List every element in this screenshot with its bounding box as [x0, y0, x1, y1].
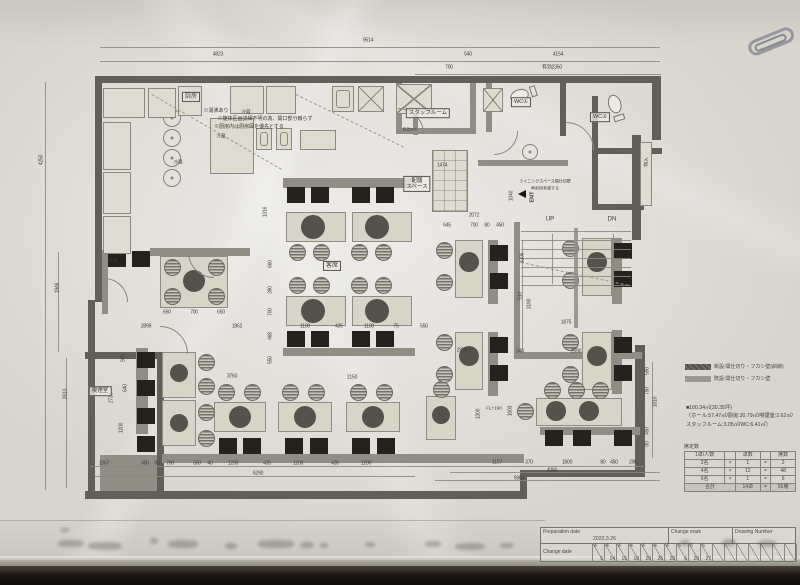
chair [282, 384, 299, 401]
table-top-circle [362, 406, 384, 428]
room-label: 冷蔵 [242, 109, 251, 114]
dimension-label: 650 [217, 311, 225, 316]
chair [313, 244, 330, 261]
dimension-label: 4250 [40, 155, 45, 165]
dimension-label: 9514 [363, 39, 373, 44]
bench-seat [490, 365, 508, 381]
kitchen-equipment [103, 216, 131, 254]
seat-table-cell: = [760, 468, 771, 476]
chair [351, 277, 368, 294]
dimension-label: 350 [193, 462, 201, 467]
room-label: 再利用考慮する [531, 187, 559, 192]
dimension-line [58, 252, 59, 352]
change-date-day: 20 [693, 557, 699, 562]
chair [289, 277, 306, 294]
change-date-entry: 426 [653, 544, 665, 562]
chair [517, 403, 534, 420]
change-date-month: 4 [606, 544, 609, 549]
table-top-circle [579, 401, 599, 421]
room-label: 冷蔵 [217, 133, 226, 138]
dimension-label: 700 [470, 224, 478, 229]
change-date-entry: 520 [689, 544, 701, 562]
door-swing-arc [538, 122, 594, 178]
dimension-label: 5983 [514, 477, 524, 482]
dimension-label: 450 [646, 427, 651, 435]
dimension-label: 540 [464, 53, 472, 58]
seat-table-cell: = [760, 460, 771, 468]
bench-seat [132, 251, 150, 267]
kitchen-equipment [640, 142, 652, 206]
dimension-line [652, 362, 653, 458]
dimension-label: 2590 [571, 350, 581, 355]
change-date-cell: Change date [541, 544, 593, 562]
change-date-month: 4 [654, 544, 657, 549]
seat-table-cell: 席数 [771, 452, 796, 460]
dimension-label: 3190 [528, 299, 533, 309]
change-date-entry: 45 [593, 544, 605, 562]
chair [436, 242, 453, 259]
table-top-circle [546, 401, 566, 421]
room-label: 配膳 スペース [403, 176, 430, 192]
seat-table-cell [760, 452, 771, 460]
dimension-label: 4154 [553, 53, 563, 58]
bench-seat [490, 273, 508, 289]
table-top-circle [294, 406, 316, 428]
seat-count-table: 席定数 1卓/人数卓数席数2名×1=24名×12=486名×1=6合計14卓=5… [684, 443, 796, 492]
dimension-line [552, 234, 553, 284]
bench-seat [310, 438, 328, 454]
chair [375, 244, 392, 261]
bench-seat [614, 430, 632, 446]
wall [95, 76, 102, 302]
chair [308, 384, 325, 401]
total-area-line: ■100.34㎡(30.35坪) [686, 404, 793, 412]
chair [568, 382, 585, 399]
table-top-circle [587, 346, 607, 366]
seat-table: 1卓/人数卓数席数2名×1=24名×12=486名×1=6合計14卓=56席 [684, 451, 796, 492]
wall [514, 222, 520, 357]
bench-seat [545, 430, 563, 446]
dimension-label: 450 [610, 461, 618, 466]
dimension-label: 468 [269, 332, 274, 340]
kitchen-pot-circle [163, 169, 181, 187]
chair [376, 384, 393, 401]
legend-item-new-wall: 新設:間仕切り・フカシ壁(斜線) [685, 363, 784, 370]
seat-table-cell: 1卓/人数 [685, 452, 725, 460]
room-label: WC① [511, 97, 531, 107]
bleed-through-mark [225, 543, 237, 549]
wall [283, 348, 415, 356]
wall [560, 83, 566, 136]
dimension-label: 1946 [56, 283, 61, 293]
dimension-label: 750 [646, 387, 651, 395]
bench-seat [490, 245, 508, 261]
table-top-circle [459, 252, 479, 272]
room-label: ライニングスペース間仕切壁 [519, 180, 571, 185]
change-date-entry: 56 [677, 544, 689, 562]
dimension-line [66, 358, 67, 488]
bench-seat [285, 438, 303, 454]
paperclip [725, 3, 800, 94]
chair [433, 381, 450, 398]
seat-table-cell: × [725, 460, 736, 468]
room-label: 厨房 [182, 92, 200, 102]
dimension-label: 340 [516, 350, 524, 355]
bench-seat [376, 331, 394, 347]
dimension-label: 1100 [364, 325, 374, 330]
table-top-circle [170, 364, 188, 382]
room-label: 冷蔵 [174, 159, 183, 164]
change-date-month: 4 [630, 544, 633, 549]
change-date-day: 26 [657, 557, 663, 562]
dimension-label: 1300 [477, 409, 482, 419]
bleed-through-mark [680, 540, 690, 546]
preparation-date-cell: Preparation date 2022.3.26 [541, 528, 669, 543]
kitchen-equipment [103, 172, 131, 214]
entrance-arrow-icon [518, 190, 526, 198]
change-date-month: 4 [666, 544, 669, 549]
dimension-label: 900 [122, 354, 127, 362]
dimension-label: 1800 [562, 461, 572, 466]
dimension-label: 435 [335, 325, 343, 330]
chair [351, 244, 368, 261]
table-top-circle [170, 414, 188, 432]
dimension-label: 4823 [213, 53, 223, 58]
bench-seat [311, 187, 329, 203]
table-top-circle [229, 406, 251, 428]
existing-wall-swatch [685, 376, 711, 382]
seat-table-cell: = [760, 484, 771, 492]
dimension-label: 550 [269, 356, 274, 364]
wall [592, 204, 644, 210]
room-label: DN [608, 216, 617, 223]
preparation-date-value: 2022.3.26 [541, 536, 668, 542]
bleed-through-mark [365, 542, 375, 547]
dimension-label: 75 [393, 325, 398, 330]
seat-table-cell: 4名 [685, 468, 725, 476]
room-label: FL+190 [486, 405, 501, 410]
dimension-label: 510 [519, 292, 524, 300]
title-block-row1: Preparation date 2022.3.26 Change mark D… [541, 528, 795, 544]
kitchen-equipment [148, 88, 176, 118]
change-date-day: 5 [600, 557, 603, 562]
room-label: UP [546, 216, 554, 223]
bleed-through-mark [320, 543, 328, 548]
dimension-label: 2150 [347, 376, 357, 381]
seat-table-cell: 1 [736, 460, 761, 468]
table-top-circle [365, 299, 389, 323]
dimension-label: 390 [269, 286, 274, 294]
dimension-label: 660 [269, 260, 274, 268]
change-date-day: 28 [669, 557, 675, 562]
change-date-entry: 420 [641, 544, 653, 562]
seat-table-title: 席定数 [684, 443, 796, 450]
dimension-label: 370 [525, 461, 533, 466]
wall [162, 454, 524, 463]
seat-table-cell: × [725, 476, 736, 484]
seat-table-cell: 2 [771, 460, 796, 468]
kitchen-pot-circle [522, 144, 538, 160]
dimension-line [100, 47, 660, 48]
wall [100, 455, 162, 491]
change-date-entry: 414 [605, 544, 617, 562]
dimension-line [415, 74, 661, 75]
wall [88, 300, 95, 498]
dimension-label: 1474 [437, 164, 447, 169]
change-date-month: 4 [618, 544, 621, 549]
dimension-label: 2610 [64, 389, 69, 399]
dimension-label: 1040 [510, 191, 515, 201]
chair [218, 384, 235, 401]
bleed-through-mark [500, 543, 514, 548]
bench-seat [352, 187, 370, 203]
change-date-day: 14 [609, 557, 615, 562]
seat-table-cell: = [760, 476, 771, 484]
kitchen-equipment [432, 150, 468, 212]
wall [652, 76, 661, 140]
dimension-label: 700 [269, 308, 274, 316]
seat-table-cell: 合計 [685, 484, 736, 492]
bleed-through-mark [60, 528, 70, 532]
legend-label: 既設:間仕切り・フカシ壁 [714, 375, 770, 382]
chair [562, 366, 579, 383]
dimension-label: 640 [124, 384, 129, 392]
bleed-through-mark [150, 538, 158, 544]
bleed-through-mark [58, 540, 84, 547]
bleed-through-mark [88, 542, 122, 550]
change-date-empty [773, 544, 785, 562]
dimension-line [613, 234, 614, 284]
dimension-label: 1157 [492, 461, 502, 466]
seat-table-cell: 6 [771, 476, 796, 484]
kitchen-equipment [266, 86, 296, 114]
change-date-day: 20 [645, 557, 651, 562]
seat-table-cell: 卓数 [736, 452, 761, 460]
desk-surface [0, 566, 800, 585]
drawing-number-label: Drawing Number [735, 529, 773, 535]
dimension-label: 590 [646, 367, 651, 375]
room-label: 有効920 [403, 128, 418, 133]
kitchen-equipment [256, 128, 272, 150]
bench-seat [352, 331, 370, 347]
dimension-label: 80 [484, 224, 489, 229]
change-date-empty [785, 544, 797, 562]
chair [164, 288, 181, 305]
chair [164, 259, 181, 276]
change-date-entry: 415 [617, 544, 629, 562]
bench-seat [490, 337, 508, 353]
bench-seat [376, 187, 394, 203]
bench-seat [137, 380, 155, 396]
seat-table-cell: 2名 [685, 460, 725, 468]
dimension-label: 6290 [253, 472, 263, 477]
bench-seat [352, 438, 370, 454]
kitchen-equipment [103, 122, 131, 170]
dimension-label: 80 [646, 441, 651, 446]
seat-table-cell: 6名 [685, 476, 725, 484]
change-date-empty [713, 544, 725, 562]
chair [313, 277, 330, 294]
dimension-label: 1067 [99, 462, 109, 467]
chair [289, 244, 306, 261]
chair [198, 430, 215, 447]
change-date-day: 15 [621, 557, 627, 562]
table-top-circle [301, 299, 325, 323]
chair [198, 404, 215, 421]
dimension-line [45, 82, 46, 490]
chair [198, 354, 215, 371]
bench-seat [614, 337, 632, 353]
bench-seat [573, 430, 591, 446]
room-label: 冷蔵 [109, 258, 118, 263]
dimension-label: 2950 [457, 349, 467, 354]
room-label: WC② [590, 112, 610, 122]
seat-table-cell: 1 [736, 476, 761, 484]
dimension-label: 2899 [141, 325, 151, 330]
chair [592, 382, 609, 399]
door-swing-arc [470, 107, 518, 155]
dimension-label: 2072 [469, 214, 479, 219]
dimension-label: 645 [443, 224, 451, 229]
room-label: 喫煙室 [89, 386, 112, 396]
bleed-through-mark [758, 540, 776, 547]
dimension-label: 700 [166, 462, 174, 467]
bench-seat [377, 438, 395, 454]
bench-seat [614, 365, 632, 381]
room-label: ENT [530, 192, 537, 203]
dimension-label: 1200 [228, 462, 238, 467]
bleed-through-mark [722, 539, 736, 546]
dimension-label: 435 [331, 462, 339, 467]
bench-seat [137, 436, 155, 452]
chair [436, 366, 453, 383]
dimension-label: 1100 [300, 325, 310, 330]
dimension-label: 1603 [509, 406, 514, 416]
bleed-through-mark [258, 540, 294, 548]
change-date-month: 4 [594, 544, 597, 549]
dimension-label: 80 [154, 462, 159, 467]
dimension-label: 1862 [232, 325, 242, 330]
dimension-label: 1306 [521, 253, 526, 263]
kitchen-equipment [276, 128, 292, 150]
dimension-label: 295 [629, 461, 637, 466]
chair [244, 384, 261, 401]
bleed-through-mark [168, 540, 198, 548]
dimension-label: 700 [445, 66, 453, 71]
change-date-entry: 527 [701, 544, 713, 562]
sheet-crease-line [0, 520, 545, 521]
seat-table-cell: × [725, 468, 736, 476]
wall-legend: 新設:間仕切り・フカシ壁(斜線) 既設:間仕切り・フカシ壁 [685, 363, 784, 387]
chair [198, 378, 215, 395]
change-date-entry: 418 [629, 544, 641, 562]
area-breakdown-line1: 〔ホール:57.47㎡/厨房:30.79㎡/喫煙室:2.62㎡/ [686, 412, 793, 420]
bench-seat [287, 331, 305, 347]
change-date-month: 5 [702, 544, 705, 549]
legend-item-existing-wall: 既設:間仕切り・フカシ壁 [685, 375, 784, 382]
bleed-through-mark [425, 541, 441, 547]
toilet-tank [613, 113, 625, 122]
dimension-label: 450 [141, 462, 149, 467]
chair [544, 382, 561, 399]
change-date-month: 4 [642, 544, 645, 549]
bleed-through-mark [455, 543, 485, 550]
change-date-day: 6 [684, 557, 687, 562]
change-date-empty [737, 544, 749, 562]
room-label: ※躯体区画詳細不明の為、開口部分触らず [218, 116, 313, 122]
room-label: 物入 [643, 158, 648, 167]
preparation-date-label: Preparation date [543, 529, 580, 535]
bench-seat [614, 243, 632, 259]
bench-seat [137, 408, 155, 424]
table-top-circle [301, 215, 325, 239]
legend-label: 新設:間仕切り・フカシ壁(斜線) [714, 363, 784, 370]
room-label: スタッフルーム [406, 108, 450, 118]
dimension-label: 450 [496, 224, 504, 229]
bench-seat [219, 438, 237, 454]
dimension-label: 700 [190, 311, 198, 316]
wall [592, 154, 598, 210]
change-date-label: Change date [543, 549, 572, 555]
seat-table-cell: 12 [736, 468, 761, 476]
bench-seat [137, 352, 155, 368]
seat-table-cell [725, 452, 736, 460]
change-date-entry: 428 [665, 544, 677, 562]
dimension-label: 4060 [547, 469, 557, 474]
kitchen-pot-circle [163, 129, 181, 147]
change-date-month: 5 [690, 544, 693, 549]
bench-seat [311, 331, 329, 347]
dimension-label: 1810 [654, 397, 659, 407]
bench-seat [243, 438, 261, 454]
dimension-line [100, 61, 660, 62]
dimension-label: 1200 [293, 462, 303, 467]
seat-table-cell: 14卓 [736, 484, 761, 492]
area-breakdown-line2: スタッフルーム:3.05㎡/WC:6.41㎡〕 [686, 421, 793, 429]
dimension-label: 1200 [361, 462, 371, 467]
kitchen-equipment [332, 86, 354, 112]
dimension-label: 1316 [264, 207, 269, 217]
kitchen-equipment [300, 130, 336, 150]
room-label: ※湯沸あり [203, 108, 228, 114]
kitchen-equipment [483, 88, 503, 112]
chair [436, 274, 453, 291]
chair [436, 334, 453, 351]
kitchen-equipment [358, 86, 384, 112]
bench-seat [287, 187, 305, 203]
change-date-day: 18 [633, 557, 639, 562]
room-label: ※厨房内は厨房図を優先とする [214, 124, 284, 130]
photographed-floor-plan: 新設:間仕切り・フカシ壁(斜線) 既設:間仕切り・フカシ壁 ■100.34㎡(3… [0, 0, 800, 585]
change-date-day: 27 [705, 557, 711, 562]
dimension-label: 1200 [120, 423, 125, 433]
change-date-row: Change date 4541441541842042642856520527 [541, 544, 795, 562]
chair [375, 277, 392, 294]
change-date-empty [749, 544, 761, 562]
new-wall-swatch [685, 364, 711, 370]
wall [95, 76, 661, 83]
wall [520, 470, 527, 498]
bleed-through-mark [300, 542, 314, 548]
toilet-tank [529, 85, 538, 97]
wall [85, 491, 527, 499]
dimension-label: 550 [420, 325, 428, 330]
area-summary: ■100.34㎡(30.35坪) 〔ホール:57.47㎡/厨房:30.79㎡/喫… [686, 404, 793, 429]
kitchen-equipment [103, 88, 145, 118]
seat-table-cell: 48 [771, 468, 796, 476]
wall [478, 160, 568, 166]
table-top-circle [365, 215, 389, 239]
